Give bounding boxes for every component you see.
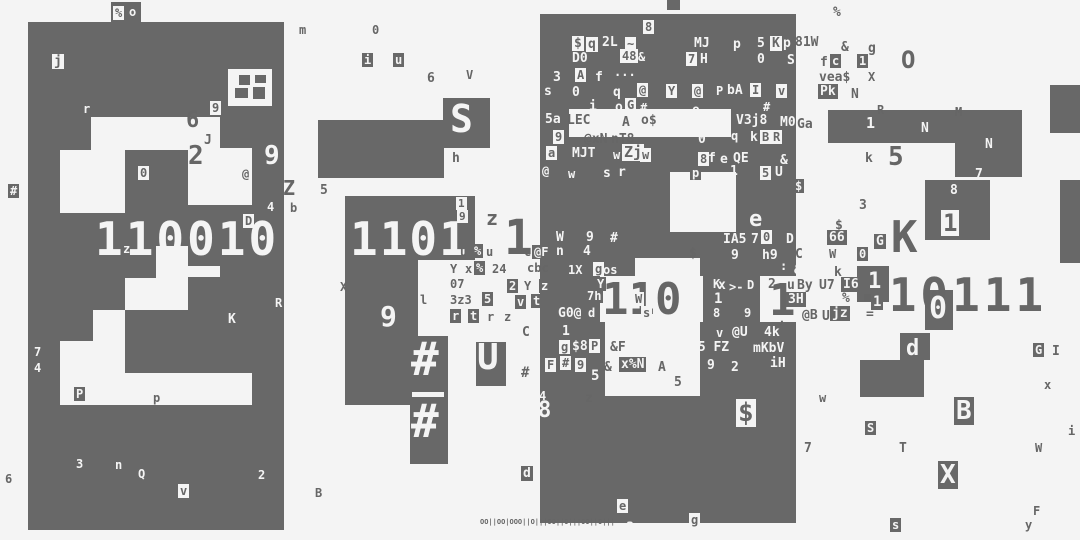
dark-block [318, 120, 444, 178]
glyph: $ [793, 179, 804, 193]
glyph: 7 [804, 442, 812, 455]
glyph: g [868, 42, 876, 55]
glyph: A [575, 68, 586, 82]
glyph: 5 [589, 368, 601, 384]
glyph: 8 [643, 20, 654, 34]
glyph: 2 [507, 279, 518, 293]
dark-block [239, 75, 250, 85]
glyph: 24 [492, 263, 506, 275]
glyph: B [760, 130, 771, 144]
glyph: q [586, 37, 598, 52]
glyph: 2 [188, 143, 204, 169]
glyph: % [833, 6, 841, 19]
glyph: p [153, 392, 160, 404]
glyph: 9 [744, 307, 751, 319]
glyph: s [603, 167, 611, 180]
glyph: n [556, 245, 564, 258]
glyph: f [708, 152, 716, 165]
light-cutout-block [60, 150, 125, 213]
glyph: &F [610, 341, 626, 354]
glyph: T [899, 442, 907, 455]
glyph: 0 [138, 166, 149, 180]
glyph: Q [138, 468, 145, 480]
glyph: A [658, 361, 666, 374]
glyph: D [745, 278, 756, 292]
glyph: o [129, 6, 136, 18]
glyph: 1 [857, 54, 868, 68]
glyph: o$ [641, 114, 657, 127]
glyph: Y [524, 280, 531, 292]
glyph: @xN [584, 133, 607, 146]
glyph: p [783, 37, 791, 50]
glyph: 1 [562, 325, 570, 338]
glyph: i [589, 100, 597, 113]
glyph: B [315, 487, 322, 499]
glyph: 5 [757, 37, 765, 50]
glyph: 6 [186, 110, 199, 132]
glyph: D [92, 345, 99, 357]
glyph: LEC [567, 114, 590, 127]
glyph: Ga [797, 118, 813, 131]
glyph: v [776, 84, 787, 98]
glyph: # [411, 336, 439, 382]
glyph: r [83, 103, 90, 115]
glyph: & [841, 41, 849, 54]
glyph: 2 [258, 469, 265, 481]
glyph: s [544, 85, 552, 98]
glyph: h [452, 152, 460, 165]
glyph: 7 [34, 346, 41, 358]
glyph: Y [666, 84, 677, 98]
glyph: g [559, 340, 570, 354]
glyph: @U [730, 325, 750, 340]
glyph: d [906, 338, 919, 360]
glyph: 4 [34, 362, 41, 374]
glyph: 0 [698, 133, 706, 146]
glyph: @ [637, 83, 648, 97]
glyph: n [115, 459, 122, 471]
glyph: r [618, 166, 626, 179]
glyph: $8 [572, 340, 588, 353]
glyph: O [901, 48, 915, 72]
glyph: 5 [760, 166, 771, 180]
glyph: C [795, 371, 808, 393]
glyph: X [938, 461, 958, 489]
dark-block [255, 75, 266, 83]
glyph: N [985, 138, 993, 151]
glyph: 0 [572, 86, 580, 99]
glyph: F [1033, 505, 1040, 517]
glyph: o [615, 101, 623, 114]
glyph: p [690, 166, 701, 180]
dark-block [253, 87, 265, 99]
glyph: C [795, 248, 803, 261]
glyph: 6 [5, 473, 12, 485]
glyph: q [613, 86, 621, 99]
glyph: z [585, 392, 593, 405]
glyph: R [877, 104, 884, 116]
glyph: vea$ [819, 71, 850, 84]
glyph: L [686, 305, 693, 317]
glyph: E5 FZ [690, 341, 729, 354]
glyph: % [474, 261, 485, 275]
glyph: v [178, 484, 189, 498]
glyph: 1 [456, 197, 467, 210]
glyph: @F [532, 245, 550, 259]
glyph: 81W [795, 36, 818, 49]
glyph: H [700, 53, 708, 66]
glyph: &m [794, 264, 810, 277]
glyph: : [778, 259, 789, 273]
glyph: S [787, 54, 795, 67]
glitch-art-canvas: %om0iu6Vjr96J290@4D#Z5b110010zRKX74DPp3n… [0, 0, 1080, 540]
glyph: 2L [602, 36, 618, 49]
glyph: iH [770, 357, 786, 370]
glyph: mKbV [753, 342, 784, 355]
glyph: MJT [572, 147, 595, 160]
glyph: 9 [264, 143, 280, 169]
glyph: 1 [864, 115, 877, 132]
glyph: 7 [975, 168, 983, 181]
glyph: t [468, 309, 479, 323]
glyph: S [865, 421, 876, 435]
glyph: w [613, 149, 620, 161]
glyph: cbc [527, 262, 549, 274]
glyph: -10111 [857, 272, 1047, 318]
glyph: bA [727, 84, 743, 97]
glyph: ... [614, 66, 636, 78]
glyph: # [763, 101, 770, 113]
glyph: c [524, 246, 531, 258]
glyph: I [750, 83, 761, 97]
glyph: 3z3 [450, 294, 472, 306]
light-cutout-block [670, 172, 736, 232]
glyph: 9 [586, 231, 594, 244]
glyph: N [851, 88, 859, 101]
glyph: 2 [768, 278, 776, 291]
glyph: F [545, 358, 556, 372]
glyph: 8 [713, 307, 720, 319]
glyph: 3H [786, 292, 806, 307]
glyph: 5 [674, 376, 682, 389]
glyph: m [299, 24, 306, 36]
glyph: a [546, 146, 557, 160]
glyph: z [504, 311, 511, 323]
glyph: g [689, 513, 700, 527]
glyph: @ [692, 84, 703, 98]
glyph: Pk [818, 84, 838, 99]
glyph: 9 [707, 359, 715, 372]
glyph: S [450, 100, 473, 138]
glyph: i [1068, 425, 1075, 437]
glyph: % [842, 292, 850, 305]
glyph: q [731, 130, 738, 142]
dark-block [860, 360, 924, 397]
glyph: d [586, 306, 597, 320]
glyph: # [521, 366, 529, 380]
glyph: w [640, 148, 651, 162]
glyph: P [589, 339, 600, 353]
glyph: 9 [210, 101, 221, 115]
glyph: 5 [888, 144, 904, 170]
glyph: G [625, 98, 636, 112]
glyph: t [531, 294, 542, 308]
glyph: @B [802, 309, 818, 322]
glyph: # [411, 398, 439, 444]
glyph: $ [689, 247, 697, 260]
glyph: 0 [929, 294, 947, 324]
glyph: a [626, 519, 634, 532]
glyph: Y [450, 263, 457, 275]
glyph: w [568, 168, 575, 180]
glyph: % [113, 6, 124, 20]
glyph: & [638, 51, 645, 63]
glyph: 1 [868, 271, 881, 293]
glyph: z [486, 208, 498, 228]
glyph: s [641, 306, 652, 320]
glyph: u [486, 246, 493, 258]
dark-block [1060, 180, 1080, 263]
glyph: A [622, 116, 630, 129]
glyph: 9 [731, 249, 739, 262]
glyph: r [487, 311, 494, 323]
glyph: 3 [859, 199, 867, 212]
glyph: c [830, 54, 841, 68]
glyph: G0@ [558, 307, 581, 320]
glyph: 7 [751, 233, 759, 246]
glyph: 8 [950, 184, 958, 197]
glyph: 4k [762, 325, 782, 340]
glyph: B [954, 397, 974, 425]
glyph: i [362, 53, 373, 67]
glyph: M [955, 106, 962, 118]
glyph: Y [595, 277, 606, 291]
light-cutout-block [125, 278, 188, 310]
glyph: b [290, 202, 297, 214]
glyph: By [797, 279, 813, 292]
dark-block [235, 88, 248, 98]
glyph: U [822, 310, 830, 323]
glyph: # [8, 184, 19, 198]
glyph: l [418, 293, 429, 307]
glyph: K [891, 216, 918, 260]
glyph: u [460, 246, 467, 258]
light-cutout-block [93, 310, 125, 341]
glyph: r [450, 309, 461, 323]
glyph: p [733, 38, 741, 51]
glyph: 0 [372, 24, 379, 36]
light-cutout-block [188, 266, 220, 277]
glyph: W [633, 292, 644, 306]
glyph: N [921, 122, 929, 135]
glyph: 07 [450, 278, 464, 290]
glyph: 9 [575, 358, 586, 372]
glyph: 8 [538, 400, 551, 422]
glyph: V3j8 [736, 114, 767, 127]
glyph: W [1035, 442, 1042, 454]
glyph: 5 [482, 292, 493, 306]
glyph: $ [736, 399, 756, 427]
glyph: W [827, 247, 838, 261]
glyph: X [868, 71, 875, 83]
glyph: K [228, 313, 236, 326]
glyph: h9 [762, 249, 778, 262]
glyph: G [1033, 343, 1044, 357]
glyph: j [52, 54, 64, 69]
glyph: z [123, 243, 130, 255]
glyph: x%N [619, 357, 646, 372]
glyph: C [522, 326, 530, 339]
glyph: k [865, 152, 873, 165]
glyph: e [749, 209, 762, 231]
glyph: 1 [730, 165, 738, 178]
glyph: f [595, 71, 603, 84]
glyph: 1101 [350, 216, 469, 262]
glyph: # [610, 232, 618, 245]
glyph: J [204, 134, 212, 147]
glyph: X [340, 281, 347, 293]
glyph: D0 [572, 52, 588, 65]
glyph: jz [830, 306, 850, 321]
glyph: U [775, 166, 783, 179]
glyph: u [787, 279, 795, 292]
glyph: V [466, 69, 473, 81]
glyph: 7 [686, 52, 697, 66]
glyph: e [617, 499, 628, 513]
glyph: R [771, 130, 782, 144]
glyph: 5 [320, 184, 328, 197]
glyph: MJ [694, 37, 710, 50]
glyph: U [477, 340, 499, 376]
glyph: x [465, 263, 472, 275]
glyph: $ [572, 36, 584, 51]
glyph: w [819, 392, 826, 404]
glyph: v [515, 295, 526, 309]
glyph: 5a [545, 113, 561, 126]
glyph: e [720, 153, 728, 166]
glyph: 1 [941, 210, 959, 236]
glyph: D [786, 233, 794, 246]
glyph: o [692, 104, 700, 117]
glyph: R [275, 297, 282, 309]
glyph: f [820, 56, 828, 69]
glyph: Z [283, 178, 295, 198]
glyph: 4 [583, 245, 591, 258]
glyph: y [1025, 519, 1032, 531]
glyph: M0 [780, 116, 796, 129]
glyph: 9 [553, 130, 564, 144]
glyph: @ [242, 168, 249, 180]
dark-block [1050, 85, 1080, 133]
glyph: >- [729, 281, 743, 293]
glyph: 9 [457, 210, 468, 223]
glyph: & [604, 361, 612, 374]
glyph: P [716, 85, 723, 97]
glyph: = [866, 308, 874, 321]
glyph: K [713, 278, 720, 290]
glyph: 48 [620, 49, 638, 63]
glyph: d [521, 466, 533, 481]
glyph: % [472, 244, 483, 258]
glyph: 3 [76, 458, 83, 470]
glyph: k [750, 131, 758, 144]
glyph: 9 [380, 303, 397, 331]
glyph: 7h [585, 289, 603, 303]
glyph: K [770, 36, 782, 51]
glyph: 1 [712, 291, 724, 307]
glyph: OO||OO|OOO||O|||OO||O|||OO||O||| [480, 519, 615, 526]
glyph: IA5 [723, 233, 746, 246]
glyph: 6 [427, 72, 435, 85]
glyph: 2 [731, 361, 739, 374]
glyph: 66 [827, 230, 847, 245]
glyph: W [556, 231, 564, 244]
glyph: v [714, 326, 725, 340]
glyph: 0 [761, 230, 772, 244]
glyph: 0 [857, 247, 868, 261]
glyph: 0 [757, 53, 765, 66]
glyph: U7 [819, 279, 835, 292]
glyph: s [890, 518, 901, 532]
glyph: 1X [568, 264, 582, 276]
glyph: z [539, 279, 550, 293]
glyph: u [609, 325, 617, 338]
glyph: # [560, 356, 571, 370]
glyph: x [1044, 379, 1051, 391]
glyph: I [1052, 345, 1060, 358]
glyph: P [74, 387, 85, 401]
glyph: @ [542, 165, 549, 177]
dark-block [667, 0, 680, 10]
glyph: 3 [553, 71, 561, 84]
glyph: G [874, 234, 886, 249]
glyph: u [393, 53, 404, 67]
